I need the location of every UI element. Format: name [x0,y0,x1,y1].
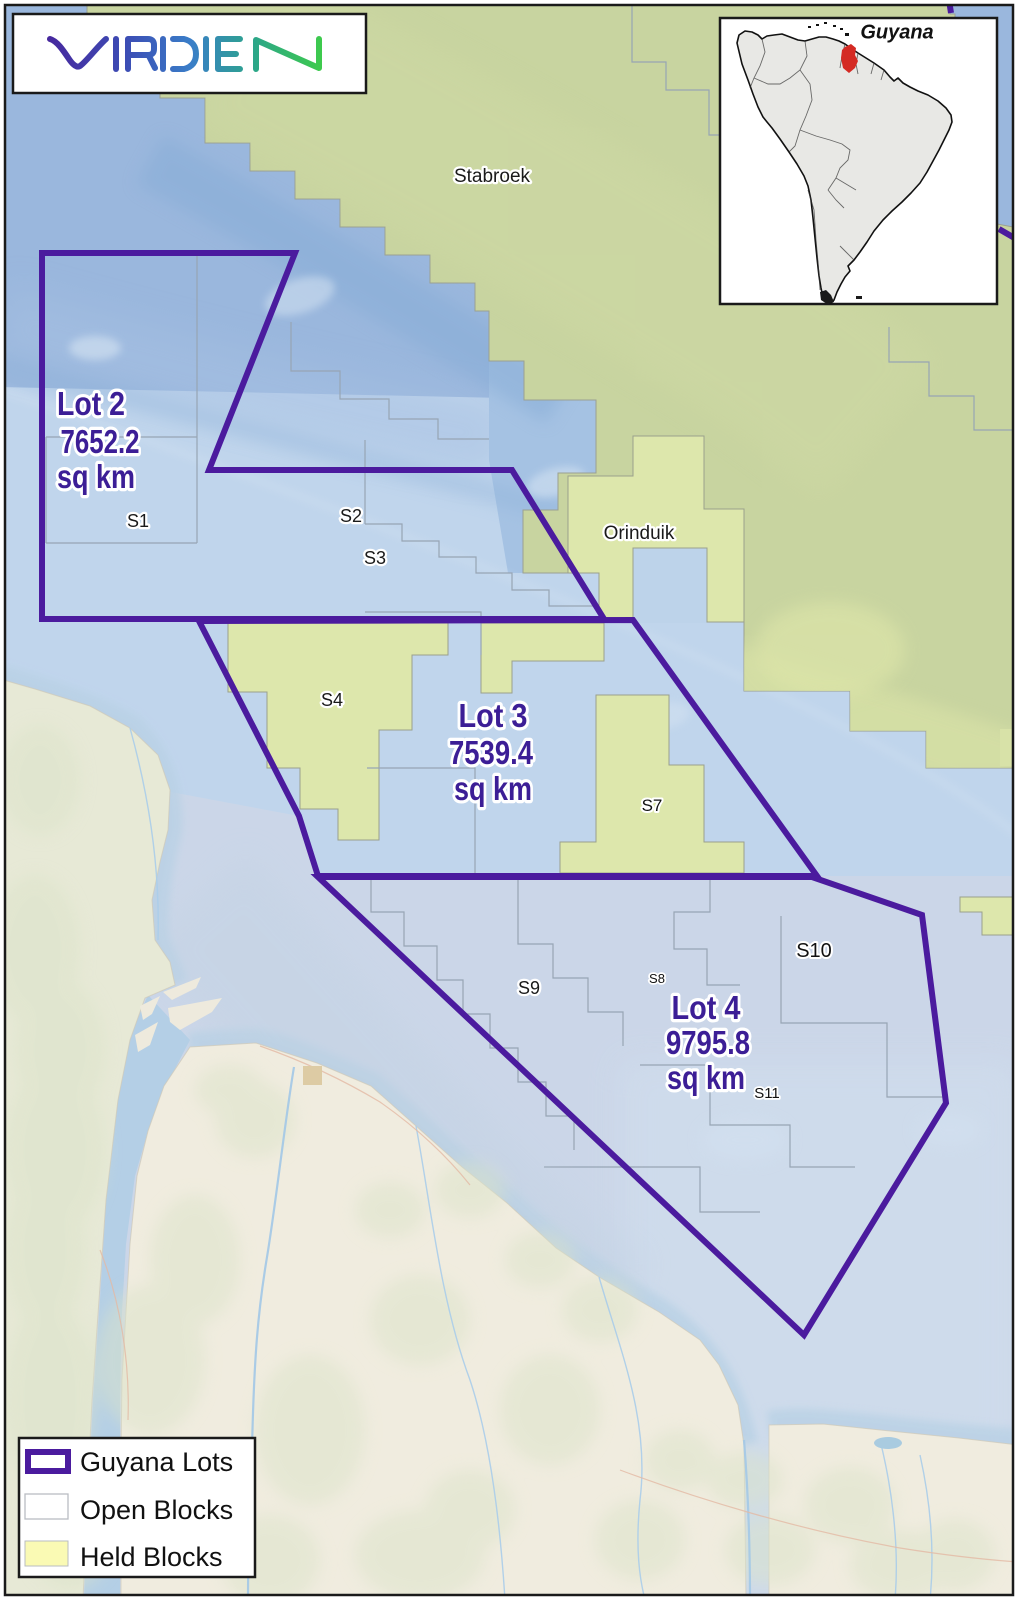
svg-text:Guyana Lots: Guyana Lots [80,1447,233,1477]
svg-text:S2: S2 [340,506,362,526]
svg-text:7539.4: 7539.4 [449,734,534,771]
svg-text:sq km: sq km [57,458,135,495]
svg-text:sq km: sq km [667,1059,745,1096]
svg-text:Lot 4: Lot 4 [672,989,742,1026]
svg-text:S8: S8 [649,971,665,986]
svg-text:7652.2: 7652.2 [61,423,140,460]
svg-text:S7: S7 [642,796,663,815]
svg-text:S1: S1 [127,511,149,531]
svg-text:S10: S10 [796,940,832,962]
svg-text:S9: S9 [518,978,540,998]
svg-text:Open Blocks: Open Blocks [80,1495,233,1525]
svg-text:S4: S4 [321,690,343,710]
svg-text:Held Blocks: Held Blocks [80,1542,223,1572]
svg-text:Guyana: Guyana [860,22,933,44]
svg-text:S3: S3 [364,548,386,568]
svg-text:Lot 2: Lot 2 [57,385,125,422]
svg-text:Orinduik: Orinduik [604,523,675,544]
svg-text:Lot 3: Lot 3 [459,697,528,734]
svg-text:Stabroek: Stabroek [454,166,531,187]
svg-text:9795.8: 9795.8 [666,1024,750,1061]
svg-text:sq km: sq km [454,770,532,807]
svg-text:S11: S11 [754,1085,780,1102]
